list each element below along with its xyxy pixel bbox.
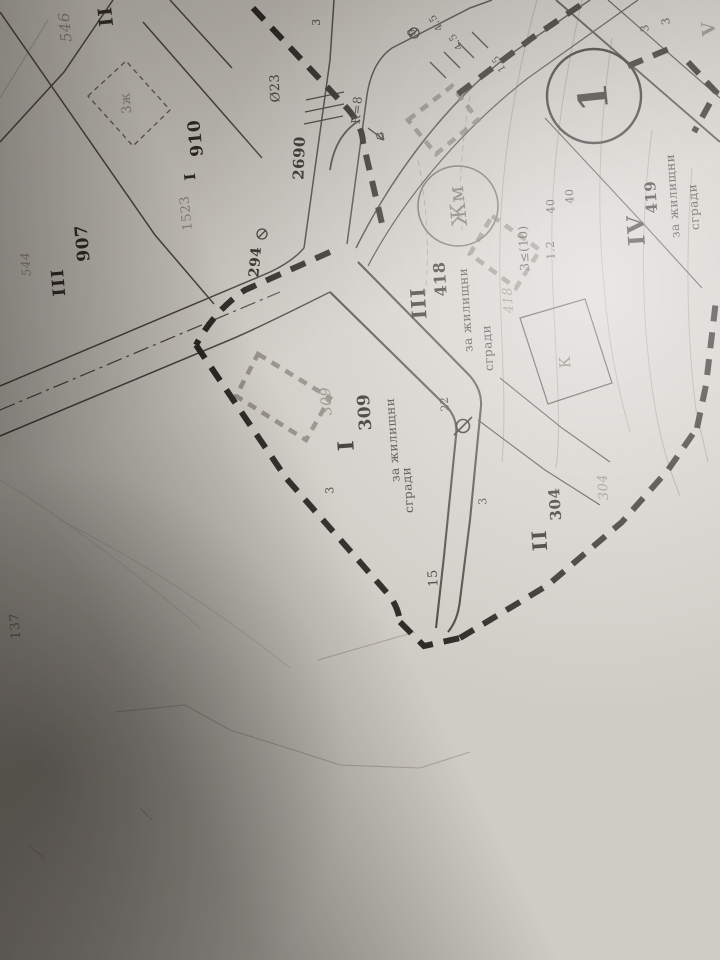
map-label-n3c: 3 xyxy=(639,23,652,32)
map-label-n22: 22 xyxy=(439,396,452,412)
map-label-pI-309: I xyxy=(335,438,359,451)
map-label-p910: 910 xyxy=(186,119,208,158)
map-label-n12: 1.2 xyxy=(545,240,558,260)
map-label-n3e: 3 xyxy=(324,486,336,494)
map-label-d23: Ø23 xyxy=(269,73,284,102)
map-label-n45a: 4.5 xyxy=(428,12,446,32)
map-label-t418a: за жилищни xyxy=(457,267,475,352)
map-label-n15a: 1.5 xyxy=(491,53,509,73)
map-label-pI-910: I xyxy=(183,171,200,181)
photo-of-regulation-plan: 546II3ж910I1523907III544Ø232690294R=8339… xyxy=(0,0,720,960)
map-label-p2690: 2690 xyxy=(291,136,308,180)
map-label-pIII-907: III xyxy=(50,267,70,297)
map-label-p418: 418 xyxy=(431,261,450,297)
map-label-vpart: V xyxy=(700,19,720,36)
map-label-zhm: Жм xyxy=(445,184,471,227)
map-label-n40a: 40 xyxy=(545,198,557,214)
map-label-p294: 294 xyxy=(247,246,264,278)
map-label-kap: К xyxy=(558,355,575,368)
map-label-p1523: 1523 xyxy=(178,195,195,231)
map-label-t418b: сгради xyxy=(480,324,496,371)
map-label-block1: 1 xyxy=(572,81,617,114)
map-label-pIV-419: IV xyxy=(624,213,650,246)
map-label-p309i: 309 xyxy=(319,386,336,415)
map-label-p137: 137 xyxy=(8,612,23,639)
map-label-t309b: сгради xyxy=(400,466,416,513)
map-label-p304: 304 xyxy=(547,487,565,521)
map-label-n3a: 3 xyxy=(375,131,387,139)
map-labels-layer: 546II3ж910I1523907III544Ø232690294R=8339… xyxy=(0,0,720,960)
map-label-n3f: 3 xyxy=(477,497,489,505)
map-label-n40b: 40 xyxy=(564,188,576,204)
map-label-b3zh: 3ж xyxy=(119,92,135,115)
map-label-n9: 9 xyxy=(406,28,418,36)
map-label-p546: 546 xyxy=(57,11,76,43)
map-label-pIII-418: III xyxy=(407,286,430,320)
map-label-p419: 419 xyxy=(643,180,661,214)
map-label-n3d: 3 xyxy=(660,16,673,25)
map-label-n3b: 3 xyxy=(311,18,323,26)
map-label-p907: 907 xyxy=(73,224,94,262)
map-label-t419b: сгради xyxy=(686,183,702,230)
map-label-p544: 544 xyxy=(19,251,34,276)
map-label-pII-304: II xyxy=(529,528,551,551)
map-label-n15: 15 xyxy=(427,569,442,587)
map-label-p309: 309 xyxy=(356,393,376,431)
map-label-n45b: 4.5 xyxy=(448,31,466,51)
map-label-p304i: 304 xyxy=(596,473,611,500)
map-label-pII-top: II xyxy=(96,5,118,28)
map-scene: 546II3ж910I1523907III544Ø232690294R=8339… xyxy=(0,0,720,960)
map-label-r8: R=8 xyxy=(349,95,364,124)
map-label-t419a: за жилищни xyxy=(664,153,682,238)
map-label-n3-10: 3≤(10) xyxy=(517,225,532,271)
map-label-p418i: 418 xyxy=(501,286,516,313)
